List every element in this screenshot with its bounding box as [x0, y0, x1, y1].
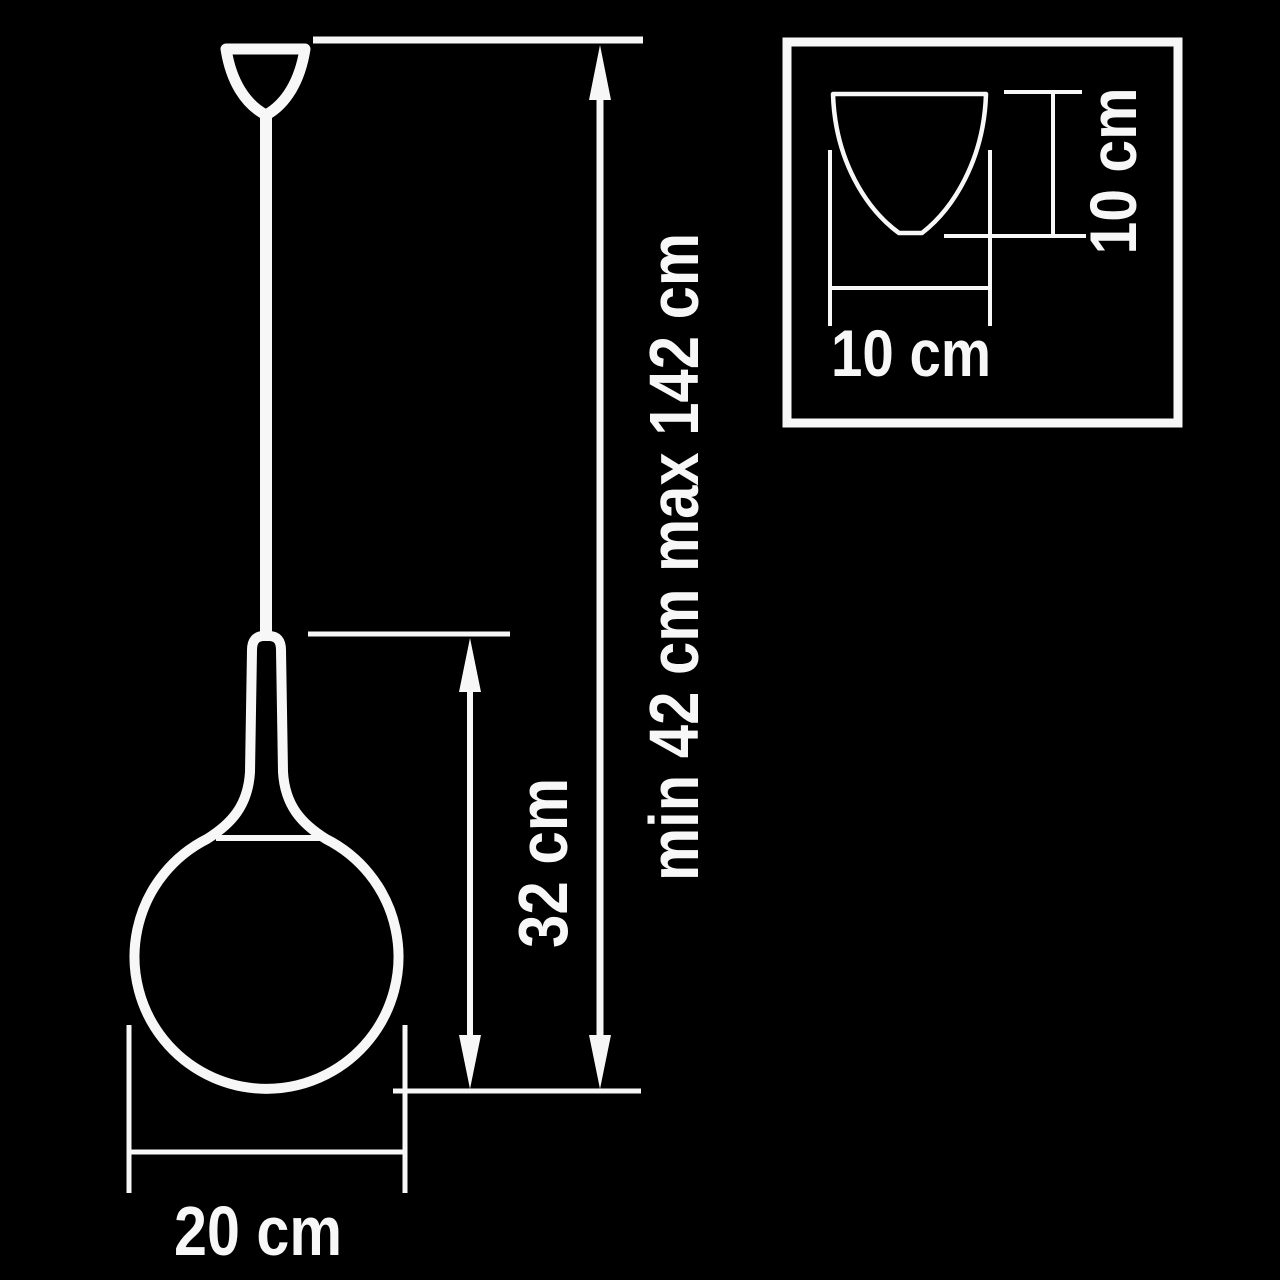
shade-height-label: 32 cm [504, 778, 582, 948]
arrow-down-icon [459, 1035, 481, 1089]
arrow-up-icon [589, 45, 611, 100]
pendant-lamp-dimension-diagram: min 42 cm max 142 cm 32 cm 20 cm 10 [0, 0, 1280, 1280]
ceiling-canopy-outline [226, 49, 305, 115]
overall-height-dimension [589, 45, 611, 1089]
inset-canopy-outline [833, 94, 986, 233]
arrow-up-icon [459, 638, 481, 692]
overall-height-label: min 42 cm max 142 cm [635, 233, 713, 881]
inset-canopy-height-label: 10 cm [1076, 88, 1150, 255]
lamp-drawing [135, 49, 399, 1089]
shade-height-dimension [459, 638, 481, 1089]
inset-height-dimension [944, 92, 1086, 236]
arrow-down-icon [589, 1035, 611, 1089]
inset-canopy-width-label: 10 cm [831, 316, 991, 390]
lamp-body-outline [135, 636, 399, 1089]
diagram-canvas: min 42 cm max 142 cm 32 cm 20 cm 10 [0, 0, 1280, 1280]
shade-diameter-label: 20 cm [174, 1192, 342, 1270]
